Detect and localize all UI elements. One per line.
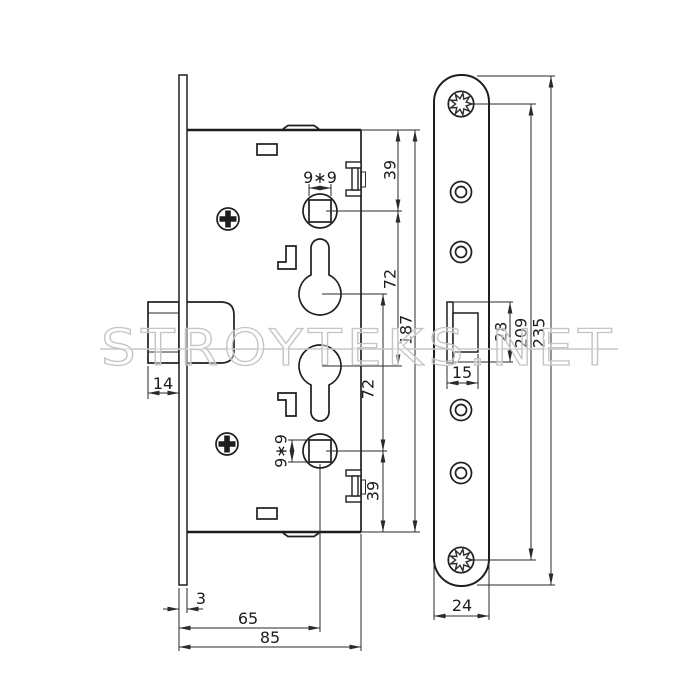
- watermark: STROYTEKS.NET: [100, 319, 618, 377]
- phillips-screw-icon-bottom: [216, 433, 238, 455]
- dim-label-85: 85: [260, 628, 280, 647]
- dim-label-3: 3: [196, 589, 206, 608]
- technical-drawing-page: 39 72 72 39 187 9∗9 9∗9 14 3 65 85 15 28…: [0, 0, 700, 700]
- cylinder-keyhole-top: [299, 239, 341, 315]
- case-slot-bottom: [257, 508, 277, 519]
- dim-label-9x9-top: 9∗9: [303, 168, 337, 187]
- dim-label-65: 65: [238, 609, 258, 628]
- case-top-tab: [283, 126, 319, 130]
- mortise-lock-drawing: 39 72 72 39 187 9∗9 9∗9 14 3 65 85 15 28…: [0, 0, 700, 700]
- edge-tab-top: [346, 162, 366, 196]
- dim-label-24: 24: [452, 596, 472, 615]
- l-bracket-bottom: [278, 393, 296, 416]
- dim-label-39-top: 39: [381, 160, 400, 180]
- edge-tab-bottom: [346, 470, 366, 502]
- phillips-screw-icon-top: [217, 208, 239, 230]
- dim-label-72-upper: 72: [381, 269, 400, 289]
- dim-label-9x9-bottom: 9∗9: [272, 434, 291, 468]
- dim-label-72-lower: 72: [359, 379, 378, 399]
- case-bottom-tab: [283, 533, 319, 537]
- case-slot-top: [257, 144, 277, 155]
- dim-label-39-bottom: 39: [364, 481, 383, 501]
- l-bracket-top: [278, 246, 296, 269]
- watermark-text: STROYTEKS.NET: [101, 319, 617, 377]
